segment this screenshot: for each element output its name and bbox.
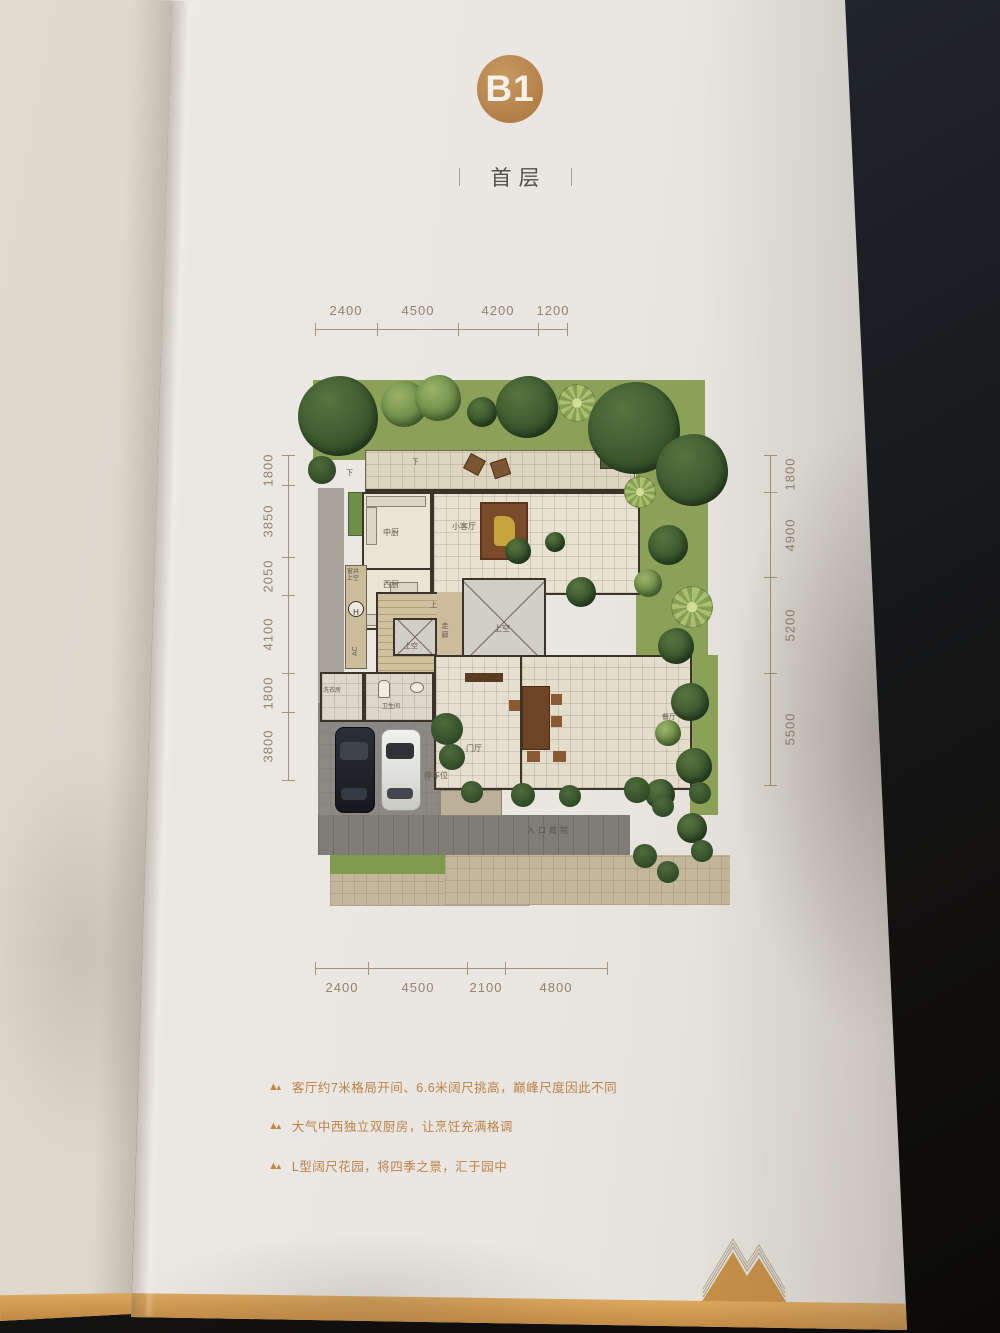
side-paving xyxy=(318,488,344,703)
console-table xyxy=(465,673,503,682)
entry-courtyard xyxy=(318,815,630,855)
dim-label: 1800 xyxy=(261,454,276,487)
dim-tick xyxy=(467,962,468,975)
laundry-label: 洗衣房 xyxy=(323,688,341,695)
car-rear-window xyxy=(341,788,367,800)
dim-tick xyxy=(282,712,295,713)
unit-badge: B1 xyxy=(477,55,543,123)
bush-icon xyxy=(431,713,463,745)
tree-icon xyxy=(505,538,531,564)
west-kitchen-label: 西厨 xyxy=(383,580,399,589)
gold-footer-strip-left xyxy=(0,1293,140,1325)
dim-label: 3800 xyxy=(261,730,276,763)
dim-tick xyxy=(538,323,539,336)
dim-tick xyxy=(607,962,608,975)
tree-icon xyxy=(496,376,558,438)
bush-icon xyxy=(461,781,483,803)
window-well-label: 窗井 上空 xyxy=(347,569,359,583)
mountain-bullet-icon: ▲▲ xyxy=(268,1161,283,1172)
tree-icon xyxy=(415,375,461,421)
bush-icon xyxy=(559,785,581,807)
dim-label: 2400 xyxy=(330,303,363,318)
car-white xyxy=(381,729,421,811)
hoist-circle: H xyxy=(348,601,364,617)
toilet xyxy=(378,680,390,698)
dim-tick xyxy=(282,485,295,486)
bush-icon xyxy=(308,456,336,484)
dim-tick xyxy=(315,323,316,336)
dim-tick xyxy=(282,595,295,596)
dim-tick xyxy=(315,962,316,975)
tree-icon xyxy=(298,376,378,456)
tree-icon xyxy=(566,577,596,607)
dining-chair xyxy=(551,716,562,727)
photo-background: B1 首层 2400 4500 4200 1200 240 xyxy=(0,0,1000,1333)
bullet-text: 大气中西独立双厨房，让烹饪充满格调 xyxy=(292,1119,513,1135)
bullet-text: 客厅约7米格局开间、6.6米阔尺挑高，巅峰尺度因此不同 xyxy=(292,1080,617,1096)
dim-tick xyxy=(282,780,295,781)
chinese-kitchen-label: 中厨 xyxy=(383,528,399,537)
bath-label: 卫生间 xyxy=(382,704,400,711)
down-label: 下 xyxy=(346,470,353,478)
dining-chair xyxy=(509,700,520,711)
mountain-bullet-icon: ▲▲ xyxy=(268,1121,283,1132)
parking-label: 停车位 xyxy=(424,771,448,780)
car-windshield xyxy=(340,742,368,760)
hoist-label: H xyxy=(353,608,359,617)
dim-tick xyxy=(377,323,378,336)
dim-tick xyxy=(458,323,459,336)
dim-label: 4500 xyxy=(402,303,435,318)
dining-table xyxy=(522,686,550,750)
dim-tick xyxy=(282,455,295,456)
dim-label: 4500 xyxy=(402,980,435,995)
dim-tick xyxy=(282,673,295,674)
title-divider-right xyxy=(571,168,572,186)
floor-title-row: 首层 xyxy=(430,162,600,192)
dim-label: 1200 xyxy=(537,303,570,318)
foyer-label: 门厅 xyxy=(466,744,482,753)
dining-chair xyxy=(553,751,566,762)
dim-tick xyxy=(368,962,369,975)
edge-shading xyxy=(700,0,1000,1333)
bush-icon xyxy=(511,783,535,807)
up-label: 上 xyxy=(430,602,437,610)
dim-tick xyxy=(505,962,506,975)
dim-tick xyxy=(567,323,568,336)
bottom-shading xyxy=(120,1180,680,1330)
small-living-label: 小客厅 xyxy=(452,522,476,531)
corridor-label: 走廊 xyxy=(440,622,448,640)
dim-label: 1800 xyxy=(261,677,276,710)
sink xyxy=(410,682,424,693)
central-void xyxy=(462,578,546,666)
dim-label: 2400 xyxy=(326,980,359,995)
down-label: 下 xyxy=(412,459,419,467)
car-dark xyxy=(335,727,375,813)
entry-courtyard-label: 入口庭院 xyxy=(527,826,571,835)
dim-label: 2050 xyxy=(261,560,276,593)
bush-icon xyxy=(439,744,465,770)
dim-tick xyxy=(282,557,295,558)
ac-label: AC xyxy=(352,646,360,656)
unit-badge-label: B1 xyxy=(485,68,534,110)
dim-label: 3850 xyxy=(261,505,276,538)
dining-chair xyxy=(551,694,562,705)
void-label: 上空 xyxy=(494,624,510,633)
dim-label: 4800 xyxy=(540,980,573,995)
bullet-text: L型阔尺花园，将四季之景，汇于园中 xyxy=(292,1159,507,1175)
tree-icon xyxy=(467,397,497,427)
dim-label: 4200 xyxy=(482,303,515,318)
void-label: 上空 xyxy=(404,643,418,651)
room-bath xyxy=(364,672,434,722)
dim-label: 2100 xyxy=(470,980,503,995)
car-rear-window xyxy=(387,788,413,799)
car-windshield xyxy=(386,743,414,759)
dining-chair xyxy=(527,751,540,762)
dim-label: 4100 xyxy=(261,618,276,651)
tree-icon xyxy=(545,532,565,552)
mountain-bullet-icon: ▲▲ xyxy=(268,1082,283,1093)
floor-title: 首层 xyxy=(484,162,547,192)
title-divider-left xyxy=(459,168,460,186)
room-laundry xyxy=(320,672,364,722)
